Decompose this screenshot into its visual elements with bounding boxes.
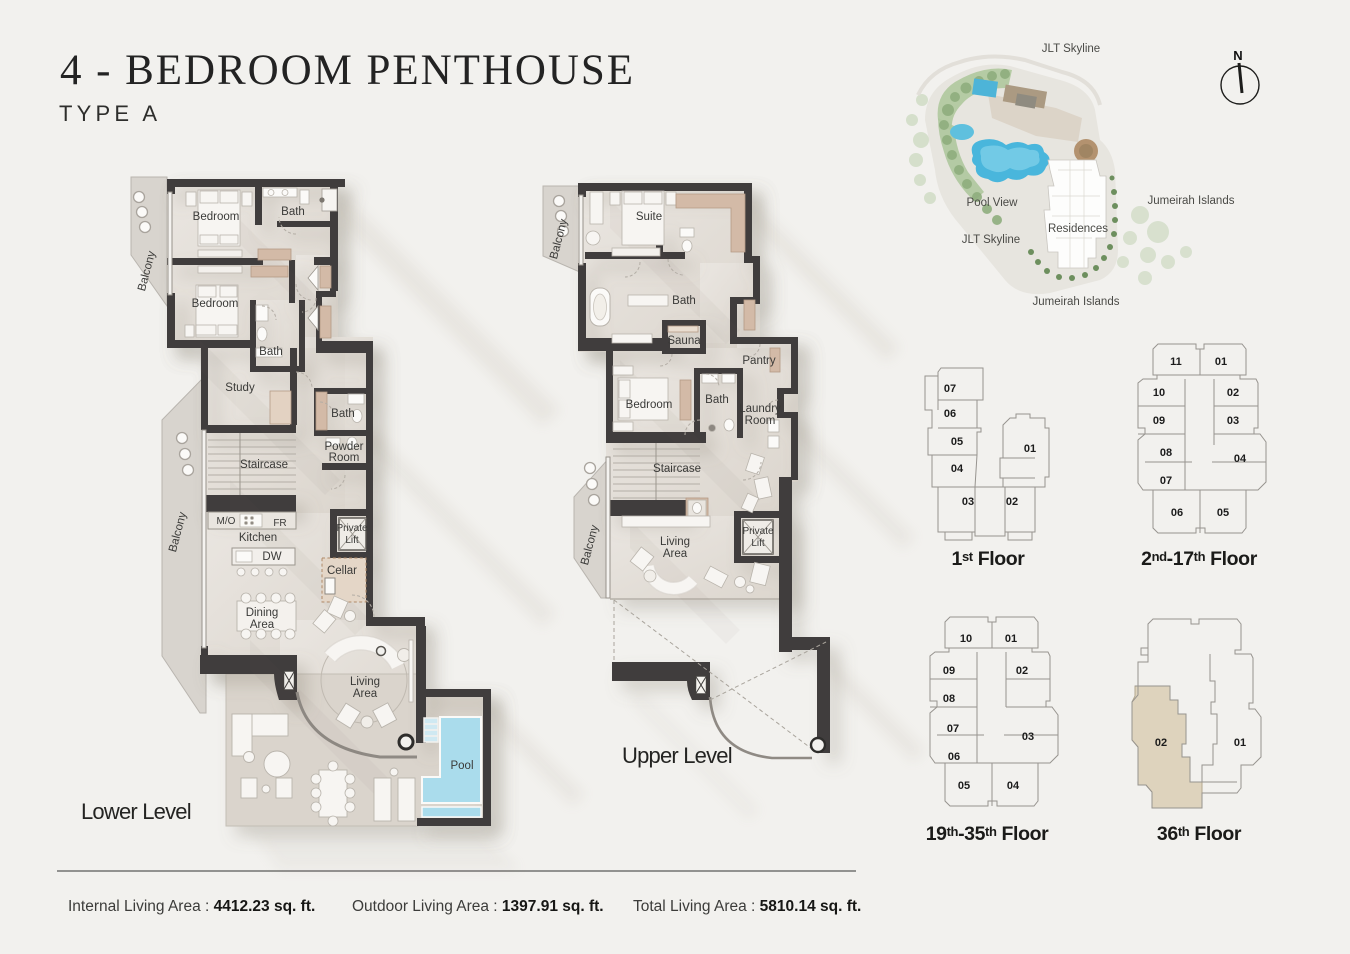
svg-text:05: 05 bbox=[1217, 507, 1229, 519]
svg-text:Bedroom: Bedroom bbox=[626, 399, 673, 411]
svg-text:Living: Living bbox=[350, 676, 380, 688]
svg-text:Laundry: Laundry bbox=[739, 403, 781, 415]
svg-text:06: 06 bbox=[948, 751, 960, 763]
svg-text:Living: Living bbox=[660, 536, 690, 548]
svg-text:Pool View: Pool View bbox=[967, 197, 1019, 209]
svg-text:Dining: Dining bbox=[246, 607, 279, 619]
svg-text:05: 05 bbox=[958, 780, 970, 792]
svg-text:Lower Level: Lower Level bbox=[81, 799, 191, 824]
svg-text:Area: Area bbox=[250, 619, 275, 631]
svg-text:Bedroom: Bedroom bbox=[192, 298, 239, 310]
svg-text:04: 04 bbox=[951, 463, 964, 475]
svg-text:Lift: Lift bbox=[751, 538, 765, 549]
svg-text:DW: DW bbox=[262, 551, 281, 563]
svg-text:M/O: M/O bbox=[217, 516, 236, 527]
svg-text:Jumeirah Islands: Jumeirah Islands bbox=[1033, 296, 1120, 308]
svg-text:N: N bbox=[1233, 48, 1242, 63]
svg-text:Bath: Bath bbox=[672, 295, 696, 307]
svg-text:Area: Area bbox=[353, 688, 378, 700]
svg-text:03: 03 bbox=[1227, 415, 1239, 427]
svg-text:05: 05 bbox=[951, 436, 963, 448]
svg-text:02: 02 bbox=[1006, 496, 1018, 508]
svg-text:06: 06 bbox=[944, 408, 956, 420]
svg-text:Upper Level: Upper Level bbox=[622, 743, 732, 768]
svg-text:Bath: Bath bbox=[259, 346, 283, 358]
svg-text:01: 01 bbox=[1215, 356, 1227, 368]
svg-text:36th Floor: 36th Floor bbox=[1157, 823, 1242, 845]
svg-text:JLT Skyline: JLT Skyline bbox=[1042, 43, 1100, 55]
svg-text:Staircase: Staircase bbox=[653, 463, 701, 475]
svg-text:07: 07 bbox=[944, 383, 956, 395]
svg-text:08: 08 bbox=[943, 693, 955, 705]
svg-text:02: 02 bbox=[1016, 665, 1028, 677]
svg-text:Pantry: Pantry bbox=[742, 355, 775, 367]
svg-text:Jumeirah Islands: Jumeirah Islands bbox=[1148, 195, 1235, 207]
svg-text:Suite: Suite bbox=[636, 211, 662, 223]
svg-text:11: 11 bbox=[1170, 356, 1182, 368]
svg-text:Kitchen: Kitchen bbox=[239, 532, 277, 544]
svg-text:01: 01 bbox=[1024, 443, 1036, 455]
svg-text:10: 10 bbox=[1153, 387, 1165, 399]
svg-text:Area: Area bbox=[663, 548, 688, 560]
svg-text:Internal Living Area : 4412.23: Internal Living Area : 4412.23 sq. ft. bbox=[68, 898, 315, 915]
svg-text:04: 04 bbox=[1007, 780, 1020, 792]
svg-text:4 - BEDROOM PENTHOUSE: 4 - BEDROOM PENTHOUSE bbox=[60, 47, 633, 94]
svg-text:Lift: Lift bbox=[345, 535, 359, 546]
svg-text:Staircase: Staircase bbox=[240, 459, 288, 471]
svg-text:Bath: Bath bbox=[331, 408, 355, 420]
svg-text:Room: Room bbox=[745, 415, 776, 427]
svg-text:Room: Room bbox=[329, 452, 360, 464]
svg-text:Residences: Residences bbox=[1048, 223, 1108, 235]
svg-text:03: 03 bbox=[1022, 731, 1034, 743]
svg-text:Bath: Bath bbox=[705, 394, 729, 406]
svg-text:02: 02 bbox=[1155, 737, 1167, 749]
svg-text:Cellar: Cellar bbox=[327, 565, 357, 577]
svg-text:07: 07 bbox=[1160, 475, 1172, 487]
svg-text:04: 04 bbox=[1234, 453, 1247, 465]
svg-text:01: 01 bbox=[1005, 633, 1017, 645]
svg-text:01: 01 bbox=[1234, 737, 1246, 749]
svg-text:Study: Study bbox=[225, 382, 255, 394]
svg-text:08: 08 bbox=[1160, 447, 1172, 459]
svg-text:06: 06 bbox=[1171, 507, 1183, 519]
svg-text:07: 07 bbox=[947, 723, 959, 735]
svg-text:02: 02 bbox=[1227, 387, 1239, 399]
svg-text:03: 03 bbox=[962, 496, 974, 508]
svg-text:Total Living Area : 5810.14 sq: Total Living Area : 5810.14 sq. ft. bbox=[633, 898, 861, 915]
svg-text:09: 09 bbox=[1153, 415, 1165, 427]
svg-text:Outdoor Living Area : 1397.91: Outdoor Living Area : 1397.91 sq. ft. bbox=[352, 898, 604, 915]
svg-text:FR: FR bbox=[273, 518, 286, 529]
svg-text:Sauna: Sauna bbox=[667, 335, 701, 347]
svg-text:09: 09 bbox=[943, 665, 955, 677]
svg-text:Pool: Pool bbox=[450, 760, 473, 772]
svg-text:Bath: Bath bbox=[281, 206, 305, 218]
svg-text:JLT Skyline: JLT Skyline bbox=[962, 234, 1020, 246]
svg-text:10: 10 bbox=[960, 633, 972, 645]
svg-text:Private: Private bbox=[336, 523, 368, 534]
svg-text:Bedroom: Bedroom bbox=[193, 211, 240, 223]
svg-text:Private: Private bbox=[742, 526, 774, 537]
